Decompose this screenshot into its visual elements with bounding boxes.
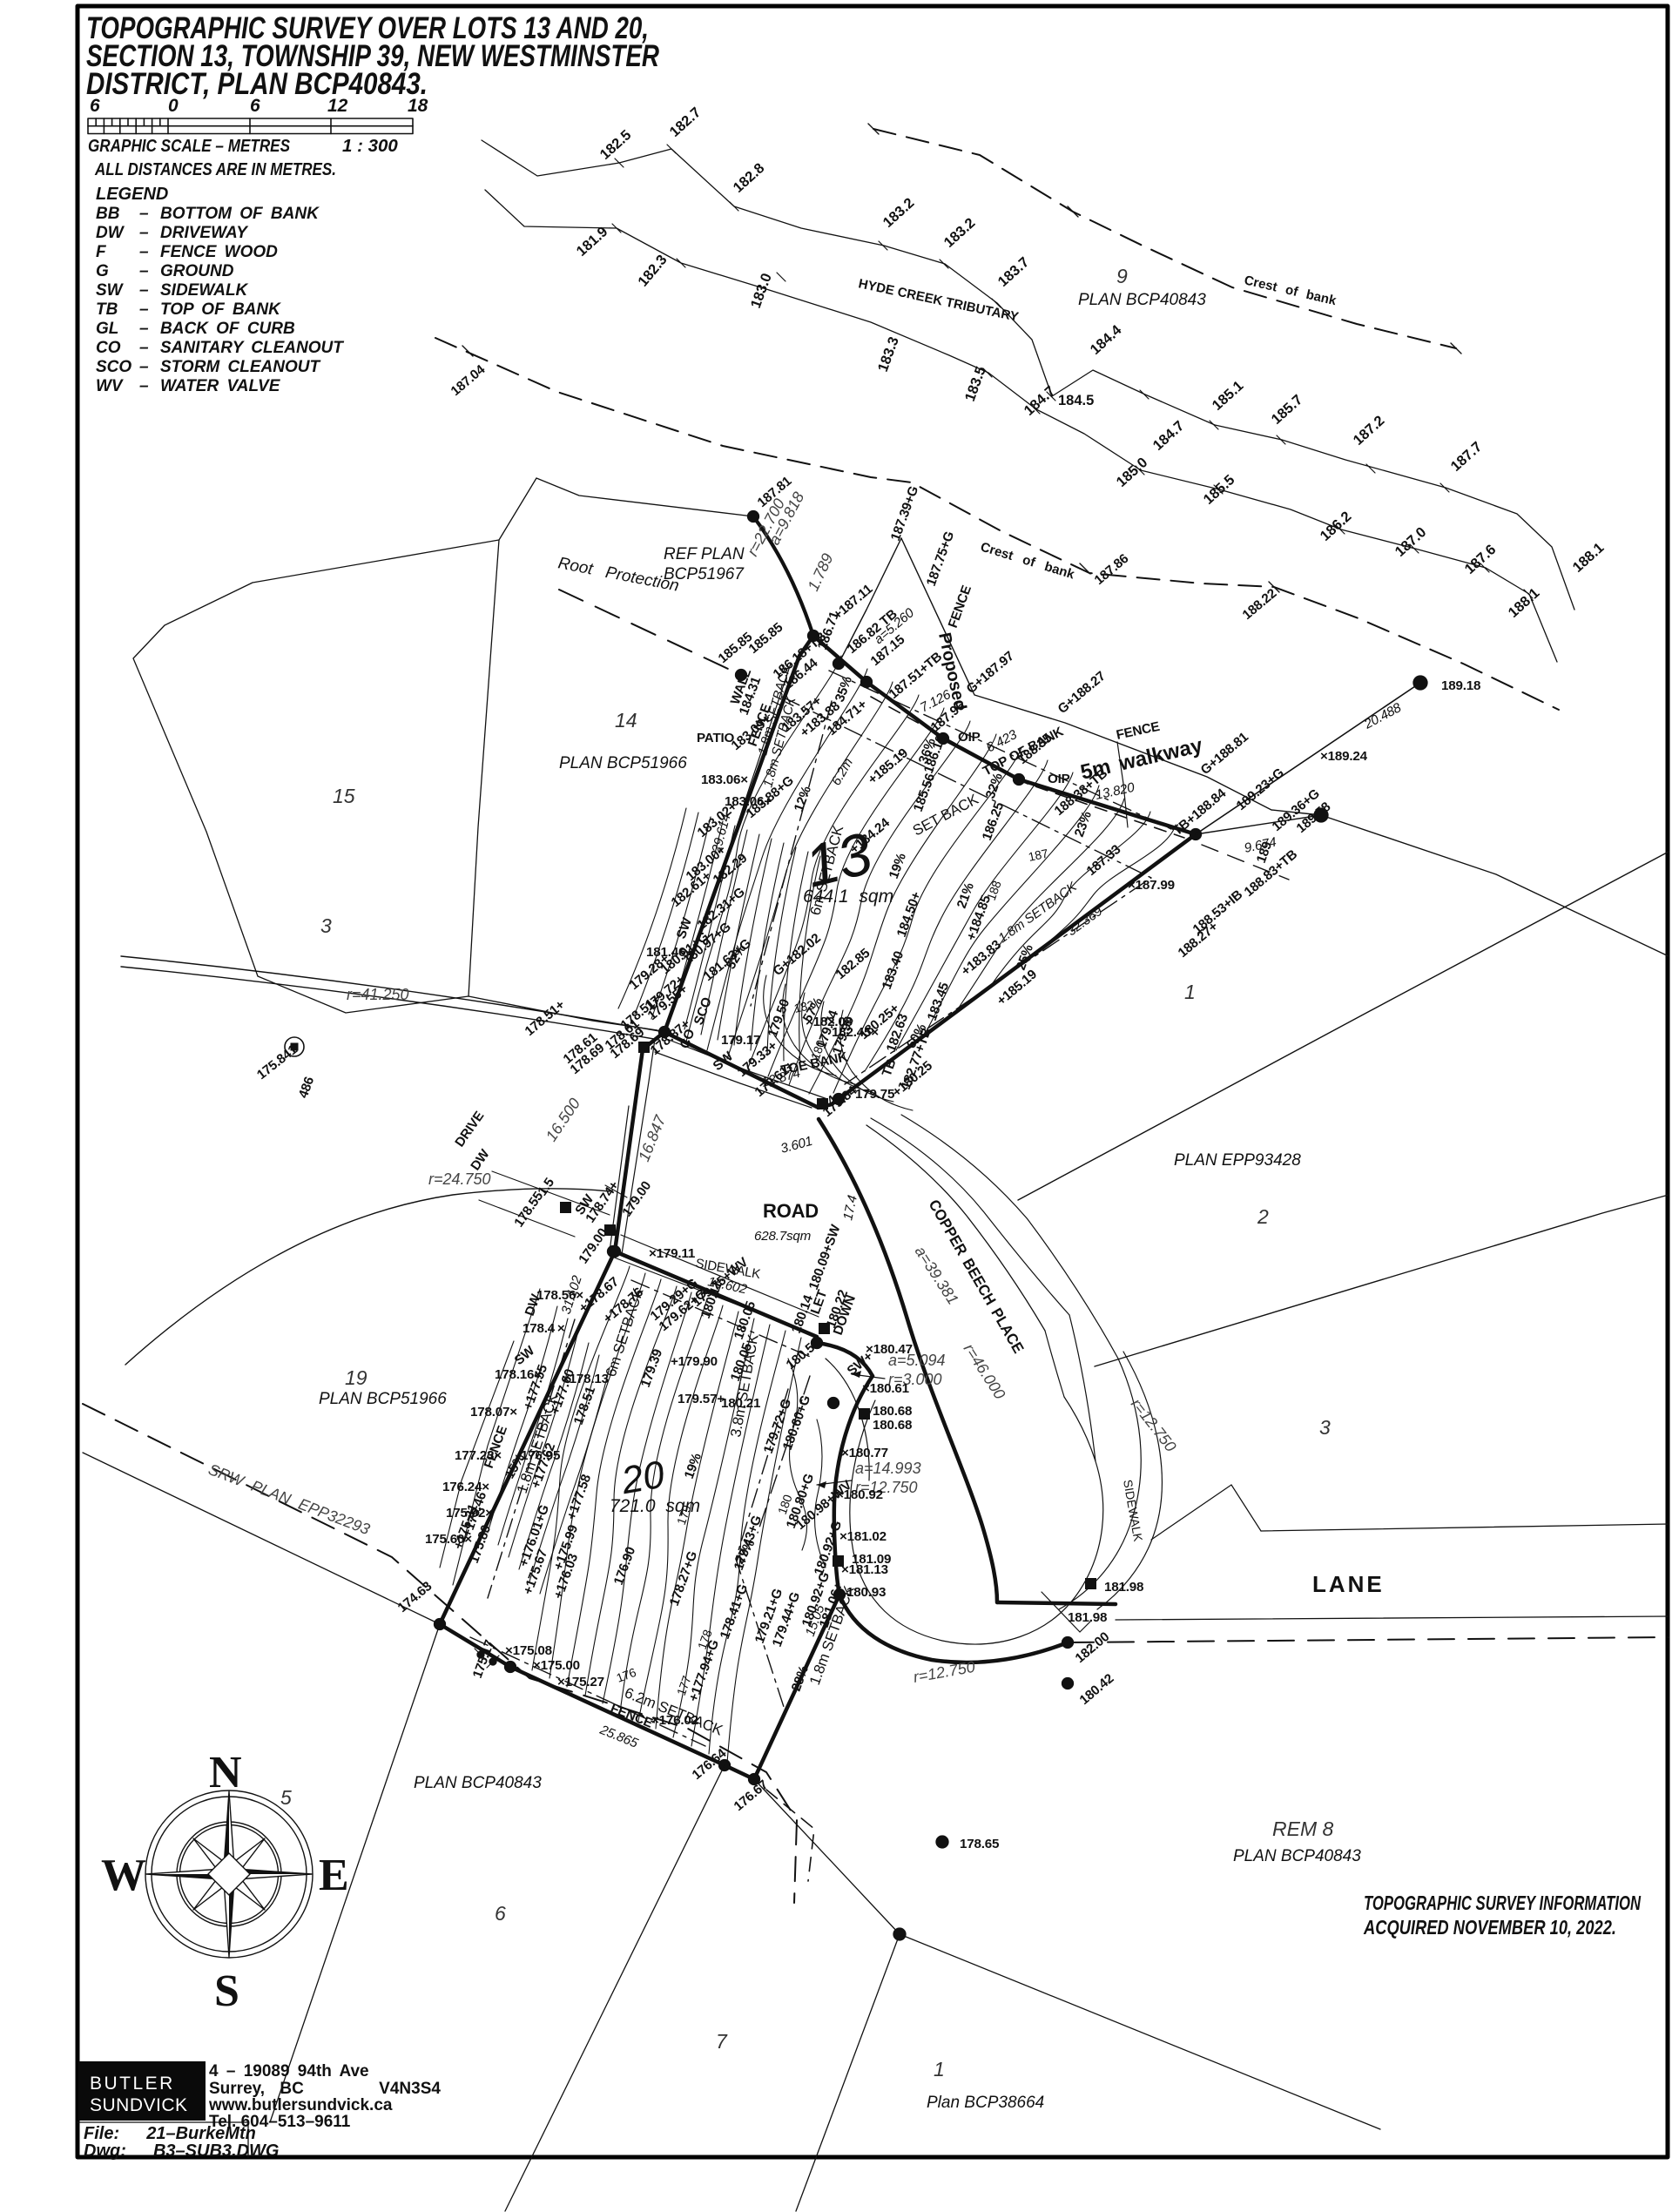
svg-text:3: 3	[1319, 1416, 1331, 1439]
svg-text:187.39+G: 187.39+G	[888, 484, 921, 543]
svg-text:0: 0	[168, 96, 179, 116]
svg-text:W: W	[101, 1851, 146, 1900]
svg-text:180.93: 180.93	[846, 1585, 886, 1600]
svg-text:×180.61: ×180.61	[862, 1381, 910, 1396]
svg-text:186.2: 186.2	[1318, 509, 1355, 544]
svg-text:32.369: 32.369	[1064, 903, 1105, 939]
svg-text:178.51: 178.51	[571, 1384, 599, 1426]
svg-text:SRW PLAN EPP32293: SRW PLAN EPP32293	[206, 1460, 373, 1538]
svg-text:F: F	[96, 243, 107, 261]
svg-text:–: –	[139, 300, 149, 319]
svg-text:25.865: 25.865	[597, 1723, 641, 1751]
svg-text:GL: GL	[96, 320, 118, 338]
svg-text:GROUND: GROUND	[160, 262, 234, 280]
svg-text:1: 1	[1184, 981, 1196, 1003]
svg-text:20: 20	[617, 1453, 668, 1502]
svg-text:3.601: 3.601	[779, 1134, 814, 1157]
svg-text:180.92+G: 180.92+G	[812, 1519, 845, 1577]
svg-text:FENCE: FENCE	[1115, 719, 1161, 743]
svg-text:SUNDVICK: SUNDVICK	[90, 2095, 188, 2115]
svg-text:3: 3	[320, 914, 332, 937]
svg-text:HYDE CREEK TRIBUTARY: HYDE CREEK TRIBUTARY	[857, 276, 1020, 325]
svg-text:N: N	[209, 1748, 242, 1797]
svg-text:–: –	[139, 224, 149, 242]
svg-text:REF PLAN: REF PLAN	[664, 545, 745, 563]
svg-text:486: 486	[296, 1075, 317, 1100]
svg-text:Surrey, BC V4N3S4: Surrey, BC V4N3S4	[209, 2080, 441, 2098]
svg-text:WATER VALVE: WATER VALVE	[160, 377, 281, 395]
svg-text:×180.77: ×180.77	[841, 1446, 888, 1460]
svg-text:182.7: 182.7	[667, 105, 705, 140]
svg-text:179.39: 179.39	[638, 1347, 665, 1389]
svg-text:WV: WV	[96, 377, 124, 395]
svg-text:SCO: SCO	[96, 358, 131, 376]
svg-text:+179.90: +179.90	[671, 1354, 718, 1369]
svg-text:r=46.000: r=46.000	[961, 1340, 1009, 1402]
svg-text:SCO: SCO	[691, 995, 715, 1028]
svg-text:×175.08: ×175.08	[505, 1643, 552, 1658]
svg-text:187.7: 187.7	[1448, 439, 1486, 475]
svg-text:PLAN BCP51966: PLAN BCP51966	[559, 754, 687, 772]
svg-text:187.04: 187.04	[448, 361, 489, 399]
svg-text:185.0: 185.0	[1114, 455, 1151, 490]
svg-text:628.7sqm: 628.7sqm	[754, 1229, 811, 1244]
svg-text:178.65: 178.65	[960, 1837, 1000, 1851]
svg-text:187: 187	[1027, 846, 1049, 863]
svg-text:File: 21–BurkeMtn: File: 21–BurkeMtn	[84, 2124, 256, 2143]
svg-text:188: 188	[984, 879, 1004, 902]
svg-text:187.0: 187.0	[1392, 524, 1430, 560]
svg-text:4 – 19089 94th Ave: 4 – 19089 94th Ave	[209, 2062, 369, 2080]
svg-text:BOTTOM OF BANK: BOTTOM OF BANK	[160, 205, 320, 223]
svg-text:6: 6	[250, 96, 260, 116]
svg-text:TOPOGRAPHIC SURVEY INFORMATION: TOPOGRAPHIC SURVEY INFORMATION	[1364, 1892, 1641, 1914]
svg-text:r=12.750: r=12.750	[1128, 1395, 1180, 1455]
svg-text:1.8m SETBACK: 1.8m SETBACK	[995, 879, 1080, 946]
svg-text:6: 6	[90, 96, 100, 116]
svg-text:+185.19: +185.19	[994, 967, 1040, 1008]
svg-text:E: E	[319, 1851, 349, 1900]
svg-text:180.68: 180.68	[873, 1404, 912, 1419]
svg-text:188.1: 188.1	[1570, 540, 1608, 576]
svg-text:SIDEWALK: SIDEWALK	[1121, 1479, 1145, 1543]
svg-text:–: –	[139, 205, 149, 223]
svg-text:181.9: 181.9	[574, 224, 611, 260]
svg-text:175.841: 175.841	[254, 1042, 300, 1082]
svg-text:183.2: 183.2	[880, 195, 918, 231]
svg-text:178.07×: 178.07×	[470, 1405, 517, 1420]
svg-text:G: G	[96, 262, 109, 280]
svg-text:182.5: 182.5	[597, 127, 635, 163]
svg-text:r=24.750: r=24.750	[428, 1170, 491, 1188]
svg-text:186.25: 186.25	[980, 799, 1008, 842]
svg-text:1: 1	[934, 2058, 945, 2080]
svg-text:BB: BB	[96, 205, 120, 223]
svg-text:183.2: 183.2	[941, 215, 979, 251]
svg-text:Plan BCP38664: Plan BCP38664	[927, 2094, 1044, 2112]
svg-text:184.50+: 184.50+	[894, 890, 925, 940]
svg-text:Root Protection: Root Protection	[556, 554, 680, 596]
svg-text:PLAN EPP93428: PLAN EPP93428	[1174, 1151, 1301, 1170]
svg-text:189.23+G: 189.23+G	[1234, 765, 1287, 813]
svg-text:185.56: 185.56	[911, 772, 938, 813]
svg-text:19%: 19%	[682, 1451, 705, 1480]
svg-text:179.17: 179.17	[721, 1033, 760, 1048]
svg-text:18: 18	[408, 96, 428, 116]
svg-text:×180.47: ×180.47	[866, 1342, 913, 1357]
svg-text:–: –	[139, 281, 149, 300]
svg-text:178.41+G: 178.41+G	[718, 1582, 751, 1641]
svg-text:a=14.993: a=14.993	[855, 1460, 921, 1477]
svg-text:www.butlersundvick.ca: www.butlersundvick.ca	[208, 2096, 393, 2114]
svg-text:184.4: 184.4	[1088, 321, 1125, 358]
svg-text:SW: SW	[96, 281, 125, 300]
svg-text:15: 15	[333, 785, 355, 807]
svg-text:LANE: LANE	[1312, 1571, 1385, 1597]
svg-text:ACQUIRED NOVEMBER 10, 2022.: ACQUIRED NOVEMBER 10, 2022.	[1363, 1916, 1616, 1939]
svg-text:176.24×: 176.24×	[442, 1480, 489, 1494]
svg-text:7: 7	[716, 2030, 728, 2053]
svg-text:SIDEWALK: SIDEWALK	[160, 281, 249, 300]
svg-text:6: 6	[495, 1902, 506, 1925]
svg-text:FENCE: FENCE	[946, 583, 974, 630]
svg-text:184.5: 184.5	[1058, 393, 1094, 408]
svg-text:CO: CO	[96, 339, 121, 357]
svg-text:185.1: 185.1	[1210, 378, 1247, 414]
svg-text:189.18: 189.18	[1441, 678, 1480, 693]
svg-text:188.22: 188.22	[1240, 586, 1280, 623]
svg-text:ALL DISTANCES ARE IN METRES.: ALL DISTANCES ARE IN METRES.	[94, 159, 336, 179]
svg-text:PLAN BCP40843: PLAN BCP40843	[1078, 291, 1206, 309]
svg-text:183.7: 183.7	[995, 254, 1033, 290]
svg-text:BACK OF CURB: BACK OF CURB	[160, 320, 295, 338]
svg-text:3.8m SETBACK: 3.8m SETBACK	[727, 1332, 762, 1439]
svg-text:182.00: 182.00	[1073, 1629, 1113, 1666]
svg-text:187.86: 187.86	[1092, 551, 1132, 588]
svg-text:FENCE: FENCE	[482, 1424, 510, 1470]
svg-text:9: 9	[1116, 265, 1128, 287]
svg-text:12: 12	[327, 96, 348, 116]
svg-text:–: –	[139, 358, 149, 376]
svg-text:PLAN BCP40843: PLAN BCP40843	[1233, 1847, 1361, 1865]
svg-text:TOP OF BANK: TOP OF BANK	[160, 300, 281, 319]
svg-text:181.98: 181.98	[1068, 1610, 1107, 1625]
svg-text:TB: TB	[880, 1057, 900, 1079]
svg-text:180.68: 180.68	[873, 1418, 912, 1433]
svg-text:183.06×: 183.06×	[701, 772, 748, 787]
svg-text:×181.13: ×181.13	[841, 1562, 888, 1577]
svg-text:×181.02: ×181.02	[839, 1529, 887, 1544]
svg-text:×179.11: ×179.11	[649, 1246, 696, 1261]
svg-text:183.40: 183.40	[880, 949, 907, 991]
svg-text:DRIVE: DRIVE	[452, 1109, 487, 1150]
svg-text:187.2: 187.2	[1351, 413, 1388, 448]
svg-text:14: 14	[615, 709, 637, 732]
svg-text:19: 19	[345, 1366, 367, 1389]
svg-text:176.90: 176.90	[611, 1545, 638, 1587]
svg-text:STORM CLEANOUT: STORM CLEANOUT	[160, 358, 320, 376]
svg-text:×189.24: ×189.24	[1320, 749, 1368, 764]
svg-text:REM 8: REM 8	[1272, 1817, 1334, 1840]
svg-text:176: 176	[615, 1665, 638, 1685]
svg-text:1.789: 1.789	[804, 550, 836, 593]
svg-text:21%: 21%	[954, 880, 977, 910]
svg-text:Crest of bank: Crest of bank	[979, 540, 1077, 583]
svg-text:FENCE WOOD: FENCE WOOD	[160, 243, 278, 261]
svg-text:TB: TB	[96, 300, 118, 319]
svg-text:×175.27: ×175.27	[557, 1675, 604, 1689]
svg-text:1 : 300: 1 : 300	[342, 136, 398, 156]
svg-text:+177.58: +177.58	[564, 1473, 594, 1521]
svg-text:20.488: 20.488	[1361, 700, 1404, 732]
svg-text:S: S	[214, 1966, 239, 2016]
svg-text:183.5: 183.5	[962, 364, 989, 403]
svg-text:Dwg: B3–SUB3.DWG: Dwg: B3–SUB3.DWG	[84, 2141, 279, 2161]
svg-text:DRIVEWAY: DRIVEWAY	[160, 224, 249, 242]
svg-text:182.85: 182.85	[833, 945, 873, 982]
svg-text:G+188.27: G+188.27	[1055, 669, 1109, 717]
svg-text:GRAPHIC SCALE – METRES: GRAPHIC SCALE – METRES	[88, 136, 290, 156]
svg-text:OIP: OIP	[958, 730, 981, 745]
svg-text:×175.00: ×175.00	[533, 1658, 580, 1673]
svg-text:PLAN BCP51966: PLAN BCP51966	[319, 1390, 447, 1408]
svg-text:2: 2	[1257, 1205, 1269, 1228]
svg-text:–: –	[139, 339, 149, 357]
svg-text:180.21: 180.21	[721, 1396, 761, 1411]
svg-text:17.4: 17.4	[840, 1194, 860, 1222]
svg-text:r=41.250: r=41.250	[347, 986, 409, 1003]
svg-text:181.98: 181.98	[1104, 1580, 1143, 1595]
svg-text:6.2m: 6.2m	[829, 756, 856, 788]
svg-text:19%: 19%	[887, 851, 909, 880]
svg-text:×187.99: ×187.99	[1128, 878, 1175, 893]
svg-text:–: –	[139, 262, 149, 280]
svg-text:–: –	[139, 377, 149, 395]
svg-text:5: 5	[280, 1786, 292, 1809]
svg-text:174.63: 174.63	[395, 1579, 435, 1615]
svg-text:G+188.81: G+188.81	[1198, 729, 1252, 778]
svg-text:+185.19: +185.19	[866, 745, 911, 787]
svg-text:SW: SW	[512, 1343, 538, 1368]
svg-text:Crest of bank: Crest of bank	[1243, 273, 1338, 308]
svg-text:179.57+: 179.57+	[678, 1392, 725, 1406]
svg-text:BUTLER: BUTLER	[90, 2074, 175, 2094]
svg-text:+187.11: +187.11	[831, 581, 876, 623]
svg-text:23%: 23%	[1072, 809, 1095, 839]
svg-text:–: –	[139, 243, 149, 261]
svg-text:5m walkway: 5m walkway	[1078, 733, 1205, 785]
svg-text:PLAN BCP40843: PLAN BCP40843	[414, 1774, 542, 1792]
svg-text:16.500: 16.500	[543, 1095, 583, 1144]
svg-text:180.09+SW: 180.09+SW	[806, 1222, 844, 1291]
svg-text:183.3: 183.3	[875, 334, 902, 374]
svg-text:184.7: 184.7	[1150, 418, 1188, 454]
svg-text:182.3: 182.3	[635, 252, 670, 289]
svg-text:DW: DW	[468, 1146, 493, 1173]
svg-text:185.5: 185.5	[1201, 472, 1238, 508]
svg-text:LEGEND: LEGEND	[96, 185, 168, 204]
svg-text:182.8: 182.8	[731, 160, 768, 196]
svg-text:187.75+G: 187.75+G	[924, 529, 957, 588]
svg-text:180.42: 180.42	[1077, 1671, 1117, 1708]
svg-text:–: –	[139, 320, 149, 338]
svg-text:12%: 12%	[792, 784, 814, 813]
svg-text:SANITARY CLEANOUT: SANITARY CLEANOUT	[160, 339, 344, 357]
svg-text:OIP: OIP	[1048, 772, 1070, 786]
svg-text:185.7: 185.7	[1269, 392, 1306, 428]
svg-text:ROAD: ROAD	[763, 1200, 819, 1222]
svg-text:DW: DW	[96, 224, 125, 242]
